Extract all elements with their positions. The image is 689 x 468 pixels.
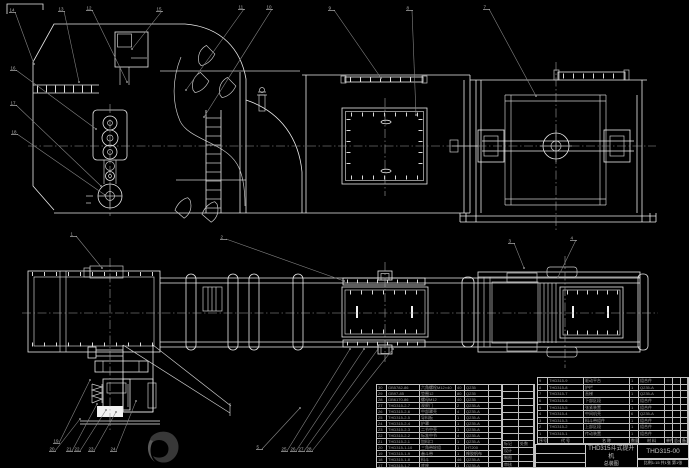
bom-row-cell	[489, 427, 502, 432]
bom-row-cell: Q235-A	[465, 439, 489, 444]
revision-row-cell	[503, 413, 519, 419]
middle-casing	[302, 75, 470, 213]
callout-label: 9	[329, 6, 332, 11]
bom-row-cell: 28	[377, 397, 387, 402]
bom-row-cell	[489, 457, 502, 462]
revision-row-cell	[519, 427, 534, 433]
bom-row-cell: 18	[377, 457, 387, 462]
revision-row-cell	[519, 420, 534, 426]
bom-row-cell: 4	[538, 411, 548, 417]
bom-row-cell: 5	[538, 405, 548, 411]
bom-row-cell: 螺母M12	[420, 397, 456, 402]
bom-row-cell	[665, 385, 673, 391]
bom-row-cell: 直梯	[584, 391, 630, 397]
bom-row-cell	[681, 398, 688, 404]
callout-leader	[287, 349, 350, 451]
callout-arrow	[131, 48, 133, 50]
callout-label: 12	[87, 6, 93, 11]
callout-arrow	[523, 267, 525, 269]
bom-row-cell: Q235-A	[465, 427, 489, 432]
revision-block: 标记处数设计制图审核	[502, 384, 535, 468]
revision-row-cell	[519, 392, 534, 398]
bom-row-cell: 1	[456, 445, 465, 450]
bom-row-cell	[489, 403, 502, 408]
bom-header-row-cell: 数量	[630, 438, 639, 444]
bom-row-cell: 8	[538, 385, 548, 391]
callout-label: 25	[282, 447, 288, 452]
bom-row-cell: 三角带轮组	[420, 445, 456, 450]
bom-row-cell	[681, 391, 688, 397]
callout-leader	[76, 236, 102, 268]
bom-row-cell	[673, 411, 681, 417]
bom-row-cell: GB97-85	[387, 391, 420, 396]
callout-arrow	[185, 89, 187, 91]
bom-row-cell	[673, 378, 681, 384]
callout-arrow	[299, 407, 301, 409]
bom-row-cell: THD315-8	[548, 385, 584, 391]
callout-label: 2	[221, 235, 224, 240]
bom-row-cell	[489, 415, 502, 420]
bom-row: 2THD315-2上部区段1组合件	[538, 424, 688, 431]
callout-label: 19	[54, 439, 60, 444]
callout-label: 16	[11, 66, 17, 71]
bom-row-cell	[489, 421, 502, 426]
bom-row-cell	[673, 391, 681, 397]
bom-row-cell: 护罩	[420, 421, 456, 426]
revision-row-cell	[519, 448, 534, 454]
bom-row-cell: THD315-2-3	[387, 427, 420, 432]
bom-row-cell	[665, 418, 673, 424]
watermark-logo	[148, 432, 179, 463]
bom-row-cell: Q235-A	[465, 457, 489, 462]
bom-row-cell: 1	[630, 378, 639, 384]
bom-row-cell: HT200	[465, 445, 489, 450]
sheet-info: 比例1:15 共1张 第1张	[644, 460, 682, 466]
bom-row-cell: 组合件	[639, 424, 665, 430]
callout-arrow	[101, 267, 103, 269]
bom-row-cell: THD315-2-4	[387, 421, 420, 426]
head-section	[33, 24, 470, 224]
bom-row-cell: 畚斗带	[420, 451, 456, 456]
revision-row-cell	[503, 392, 519, 398]
bom-row-cell: 1	[630, 391, 639, 397]
bom-row-cell: 40	[456, 385, 465, 390]
callout-leader	[186, 9, 244, 90]
callout-leader	[262, 408, 300, 449]
bom-row-cell: 20	[377, 445, 387, 450]
signature-block	[535, 444, 586, 468]
callout-arrow	[104, 194, 106, 196]
callout-label: 27	[299, 447, 305, 452]
bom-row-cell: Q235-A	[465, 409, 489, 414]
bom-row-cell: 4	[456, 409, 465, 414]
doc-type: 总装图	[604, 461, 619, 468]
drawing-number-cell: THD315-00	[637, 444, 689, 459]
bom-row-cell: 1	[456, 421, 465, 426]
callout-arrow	[79, 418, 81, 420]
callout-leader	[59, 380, 90, 443]
callout-label: 23	[89, 447, 95, 452]
revision-row	[503, 406, 534, 413]
bom-row-cell: 25	[377, 415, 387, 420]
bom-row-cell: 27	[377, 403, 387, 408]
bom-header-row-cell: 单件	[665, 438, 673, 444]
bom-row-cell	[681, 418, 688, 424]
bom-row-cell: THD315-2-5	[387, 415, 420, 420]
callout-arrow	[349, 348, 351, 350]
bom-row-cell	[673, 418, 681, 424]
callout-leader	[80, 410, 106, 451]
flange-rings	[186, 274, 303, 350]
bom-row-cell: THD315-2-1	[387, 439, 420, 444]
bom-row: 17THD315-1-7底座1Q235-A	[377, 463, 502, 468]
callout-leader	[304, 349, 378, 451]
bom-row-cell: 6	[538, 398, 548, 404]
revision-row-cell	[519, 455, 534, 461]
revision-row-cell	[503, 427, 519, 433]
callout-leader	[132, 11, 162, 49]
bom-header-row-cell: 总计	[673, 438, 681, 444]
bom-row-cell: THD315-5	[548, 405, 584, 411]
bom-row-cell: 驱动平台	[584, 378, 630, 384]
callout-label: 20	[50, 447, 56, 452]
revision-row-cell: 处数	[519, 441, 534, 447]
callout-arrow	[535, 95, 537, 97]
callout-arrow	[95, 128, 97, 130]
bom-row-cell: 1	[630, 385, 639, 391]
callout-arrow	[115, 411, 117, 413]
callout-leader	[17, 134, 105, 195]
bom-row-cell: 1	[630, 418, 639, 424]
revision-row: 标记处数	[503, 441, 534, 448]
callout-arrow	[135, 400, 137, 402]
callout-arrow	[105, 409, 107, 411]
bom-row-cell: THD315-2-2	[387, 433, 420, 438]
callout-label: 10	[267, 5, 273, 10]
callout-arrow	[126, 81, 128, 83]
bom-row-cell: 1	[456, 439, 465, 444]
bom-row-cell: 料斗	[420, 457, 456, 462]
callout-arrow	[33, 63, 35, 65]
revision-row: 审核	[503, 462, 534, 468]
bom-row-cell	[681, 424, 688, 430]
callout-label: 1	[71, 232, 74, 237]
feed-chute	[33, 85, 99, 93]
callout-leader	[489, 9, 536, 96]
ladder	[206, 110, 221, 213]
bom-row-cell	[681, 378, 688, 384]
callout-leader	[412, 10, 416, 115]
bom-row-cell	[489, 433, 502, 438]
callout-arrow	[343, 280, 345, 282]
bom-row-cell: 1	[456, 463, 465, 468]
revision-row-cell	[503, 399, 519, 405]
bom-row-cell: Q235	[465, 385, 489, 390]
bom-row-cell	[489, 385, 502, 390]
revision-row	[503, 413, 534, 420]
door-handle	[381, 169, 391, 173]
bom-row-cell: 标准中节	[420, 433, 456, 438]
bom-row-cell	[681, 431, 688, 437]
bom-row-cell: Q235-A	[465, 433, 489, 438]
callout-arrow	[415, 114, 417, 116]
callout-label: 28	[307, 447, 313, 452]
revision-row-cell	[519, 385, 534, 391]
revision-row	[503, 399, 534, 406]
bom-row: 8THD315-8护栏1Q235-A	[538, 385, 688, 392]
revision-row-cell: 制图	[503, 455, 519, 461]
callout-leader	[94, 412, 116, 451]
revision-row	[503, 434, 534, 441]
bom-row-cell	[665, 391, 673, 397]
bom-row-cell	[673, 424, 681, 430]
callout-arrow	[557, 276, 559, 278]
revision-row	[503, 392, 534, 399]
revision-row-cell	[519, 399, 534, 405]
bom-header-row-cell: 代 号	[548, 438, 584, 444]
bom-row-cell	[665, 431, 673, 437]
bom-row: 3THD315-3料斗带组件1组合件	[538, 418, 688, 425]
bom-row-cell: 二节中壳	[420, 427, 456, 432]
chute-plan	[123, 345, 231, 416]
bom-row-cell	[681, 405, 688, 411]
revision-row-cell: 设计	[503, 448, 519, 454]
bom-row-cell	[489, 463, 502, 468]
head-pulley-cluster	[86, 110, 127, 208]
bom-row-cell: Q235-A	[465, 421, 489, 426]
bom-row-cell: 22	[377, 433, 387, 438]
revision-row-cell	[519, 462, 534, 468]
bom-header-row-cell: 序号	[538, 438, 548, 444]
bom-row: 7THD315-7直梯1Q235-A	[538, 391, 688, 398]
bom-row-cell: Q235-A	[639, 411, 665, 417]
bom-row-cell: 3	[538, 418, 548, 424]
bom-row-cell	[489, 445, 502, 450]
bom-table-left: 30GB5782-86六角螺栓M12×4040Q23529GB97-85垫圈12…	[376, 384, 503, 468]
revision-row-cell	[503, 420, 519, 426]
callout-arrow	[380, 77, 382, 79]
bom-row-cell: GB5782-86	[387, 385, 420, 390]
bom-row-cell: THD315-1	[548, 431, 584, 437]
bom-row-cell	[673, 405, 681, 411]
cad-drawing-viewport: 1413121511109871617181234192021222324525…	[0, 0, 689, 468]
tail-plan	[462, 256, 648, 368]
coupling-spring	[92, 384, 102, 403]
bom-row-cell: 组合件	[639, 378, 665, 384]
tail-section	[450, 62, 656, 232]
callout-arrow	[96, 403, 98, 405]
elevation-view	[28, 24, 656, 232]
bom-row-cell: 26	[377, 409, 387, 414]
bom-row-cell: THD315-1-7	[387, 463, 420, 468]
title-block-name-cell: THD315斗式提升机 总装图	[585, 444, 638, 468]
bom-row-cell: 底座	[420, 463, 456, 468]
bom-row-cell	[489, 409, 502, 414]
bom-row-cell: Q235-A	[465, 463, 489, 468]
bom-row-cell: 9	[538, 378, 548, 384]
bom-row-cell	[673, 398, 681, 404]
callout-leader	[514, 243, 524, 268]
callout-arrow	[203, 116, 205, 118]
inlet-spout-plan	[90, 266, 123, 278]
bom-row-cell: 加料口	[420, 439, 456, 444]
callout-label: 4	[571, 236, 574, 241]
bom-row-cell	[681, 385, 688, 391]
bom-row: 4THD315-4中间机壳6Q235-A	[538, 411, 688, 418]
bom-row-cell: Q235-A	[465, 415, 489, 420]
callout-leader	[226, 239, 344, 281]
bom-row-cell: 40	[456, 397, 465, 402]
bom-row: 6THD315-6下部区段1组合件	[538, 398, 688, 405]
callout-leader	[558, 240, 576, 277]
bom-row-cell: 下部区段	[584, 398, 630, 404]
ladder-plan	[203, 287, 222, 311]
bom-row-cell: 组合件	[639, 431, 665, 437]
bom-row-cell	[489, 439, 502, 444]
revision-row	[503, 385, 534, 392]
bom-row-cell: 24	[377, 421, 387, 426]
bom-row-cell	[665, 405, 673, 411]
callout-arrow	[363, 348, 365, 350]
bom-row-cell: 导料板	[420, 415, 456, 420]
bom-row: 5THD315-5张紧装置1组合件	[538, 405, 688, 412]
bom-row-cell	[489, 391, 502, 396]
bom-header-row-cell: 名 称	[584, 438, 630, 444]
bom-row-cell: 观察门	[420, 403, 456, 408]
callout-leader	[334, 10, 381, 78]
bom-row-cell: 组合件	[639, 418, 665, 424]
bom-row-cell: 上部区段	[584, 424, 630, 430]
revision-row-cell	[519, 434, 534, 440]
bom-row-cell	[665, 398, 673, 404]
bom-row-cell: 17	[377, 463, 387, 468]
bom-row-cell: THD315-2-6	[387, 409, 420, 414]
drawing-number: THD315-00	[646, 448, 680, 455]
callout-label: 3	[509, 239, 512, 244]
bom-row-cell: GB6170-86	[387, 397, 420, 402]
bom-row-cell	[489, 397, 502, 402]
door-handle	[381, 120, 391, 124]
inspection-door-plan	[342, 262, 428, 362]
callout-arrow	[89, 379, 91, 381]
bom-row-cell: 橡胶帆布	[465, 451, 489, 456]
bom-header-row-cell: 材 料	[639, 438, 665, 444]
bom-row: 1THD315-1传动装置1组合件	[538, 431, 688, 438]
bom-row-cell	[673, 431, 681, 437]
bom-row-cell: THD315-2	[548, 424, 584, 430]
bom-row-cell: THD315-1-10	[387, 445, 420, 450]
drive-unit-plan	[80, 347, 160, 424]
callout-label: 17	[11, 101, 17, 106]
bom-row-cell: 垫圈12	[420, 391, 456, 396]
bom-row-cell: THD315-9	[548, 378, 584, 384]
bom-row-cell: Q235	[465, 397, 489, 402]
bom-row-cell: 六角螺栓M12×40	[420, 385, 456, 390]
callout-label: 24	[111, 447, 117, 452]
bom-row-cell: 46	[456, 457, 465, 462]
bom-row-cell: THD315-1-9	[387, 451, 420, 456]
revision-row-cell: 标记	[503, 441, 519, 447]
bom-row-cell: Q235-A	[639, 391, 665, 397]
bom-row-cell: 传动装置	[584, 431, 630, 437]
bom-row-cell: 7	[538, 391, 548, 397]
bom-row-cell: 30	[377, 385, 387, 390]
callout-arrow	[377, 348, 379, 350]
bom-row-cell	[665, 424, 673, 430]
bom-row-cell: 中部罩壳	[420, 409, 456, 414]
bom-row-cell: 19	[377, 451, 387, 456]
bom-row-cell: Q235	[465, 391, 489, 396]
bom-row-cell: 组合件	[639, 398, 665, 404]
bom-row-cell: Q235-A	[639, 385, 665, 391]
bom-row-cell: 2	[456, 403, 465, 408]
callout-arrow	[78, 81, 80, 83]
bom-row: 9THD315-9驱动平台1组合件	[538, 378, 688, 385]
bom-row-cell: THD315-7	[548, 391, 584, 397]
bom-row-cell: 23	[377, 427, 387, 432]
bom-row-cell: 组合件	[639, 405, 665, 411]
bom-header-row-cell: 备注	[681, 438, 688, 444]
bom-row-cell: 护栏	[584, 385, 630, 391]
callout-arrow	[100, 185, 102, 187]
callout-leader	[16, 105, 101, 186]
bom-row-cell	[673, 385, 681, 391]
bom-row-cell: THD315-6	[548, 398, 584, 404]
callout-label: 18	[12, 130, 18, 135]
callout-leader	[92, 10, 127, 82]
bom-row-cell	[489, 451, 502, 456]
revision-row-cell	[519, 413, 534, 419]
revision-row: 设计	[503, 448, 534, 455]
bom-row-cell: 4	[456, 433, 465, 438]
bom-row-cell: 1	[630, 405, 639, 411]
bom-row-cell	[665, 378, 673, 384]
callout-label: 13	[59, 7, 65, 12]
bom-row-cell: 29	[377, 391, 387, 396]
bom-row-cell: 1	[630, 424, 639, 430]
revision-row	[503, 427, 534, 434]
callout-arrow	[392, 348, 394, 350]
callout-leader	[296, 349, 364, 451]
bom-row-cell: THD315-4	[548, 411, 584, 417]
bom-row-cell: 2	[538, 424, 548, 430]
bom-row-cell: 料斗带组件	[584, 418, 630, 424]
bolt-fitting	[257, 88, 267, 112]
bom-row-cell: 80	[456, 391, 465, 396]
revision-row	[503, 420, 534, 427]
bom-row-cell	[681, 411, 688, 417]
callout-leader	[204, 9, 272, 117]
bom-table-right: 9THD315-9驱动平台1组合件8THD315-8护栏1Q235-A7THD3…	[537, 377, 689, 444]
revision-row: 制图	[503, 455, 534, 462]
bom-row-cell: THD315-2-7	[387, 403, 420, 408]
callout-leader	[15, 12, 34, 64]
bom-row-cell: 1	[538, 431, 548, 437]
callout-label: 21	[67, 447, 73, 452]
callout-leader	[16, 70, 96, 129]
callout-leader	[64, 11, 79, 82]
callout-label: 8	[407, 6, 410, 11]
bom-row-cell: 中间机壳	[584, 411, 630, 417]
bom-row-cell: 1	[630, 398, 639, 404]
revision-row-cell	[503, 406, 519, 412]
callout-label: 26	[291, 447, 297, 452]
callout-label: 14	[10, 8, 16, 13]
boot-plan	[28, 266, 222, 352]
bom-row-cell: 张紧装置	[584, 405, 630, 411]
bom-row-cell	[665, 411, 673, 417]
revision-row-cell	[519, 406, 534, 412]
